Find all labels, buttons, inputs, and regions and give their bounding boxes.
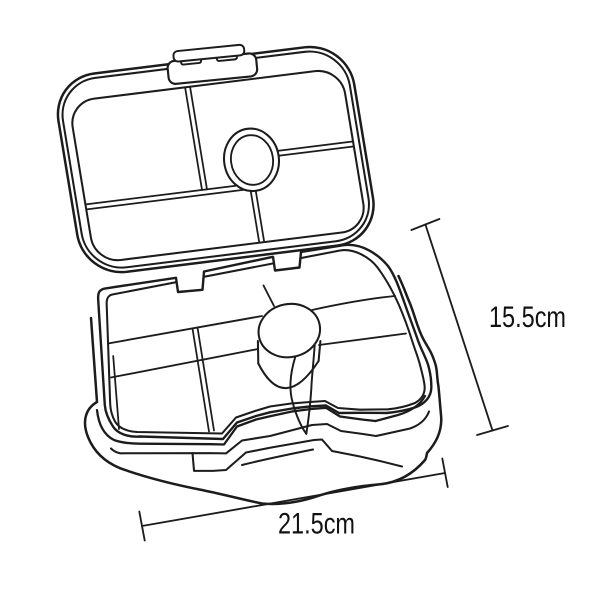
svg-text:21.5cm: 21.5cm xyxy=(278,508,355,541)
svg-text:15.5cm: 15.5cm xyxy=(489,301,566,334)
